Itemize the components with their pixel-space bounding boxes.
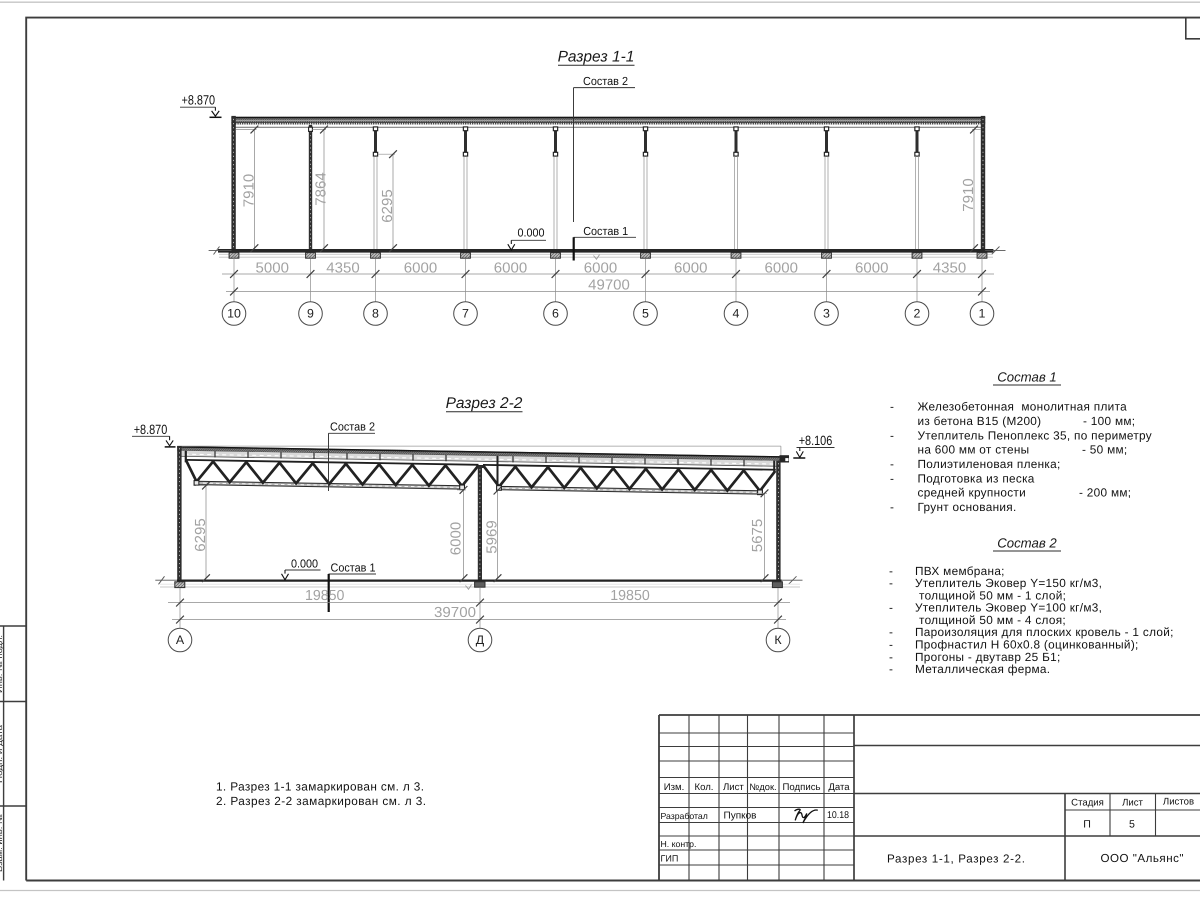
svg-text:Подпись: Подпись: [783, 782, 821, 793]
svg-text:Дата: Дата: [828, 782, 850, 793]
svg-text:6000: 6000: [855, 261, 888, 277]
svg-text:3: 3: [823, 307, 830, 321]
svg-text:7910: 7910: [241, 174, 257, 207]
svg-text:Стадия: Стадия: [1071, 797, 1104, 808]
svg-text:Грунт основания.: Грунт основания.: [918, 500, 1017, 514]
svg-text:Состав 1: Состав 1: [583, 225, 628, 238]
svg-text:39700: 39700: [434, 605, 476, 621]
svg-text:№док.: №док.: [749, 782, 776, 792]
svg-text:Железобетонная монолитная пли: Железобетонная монолитная плита: [918, 400, 1128, 414]
svg-text:Состав 1: Состав 1: [331, 561, 376, 574]
svg-text:8: 8: [372, 307, 379, 321]
svg-text:10: 10: [227, 307, 241, 321]
svg-text:+8.106: +8.106: [799, 433, 833, 448]
svg-text:7: 7: [462, 307, 469, 321]
svg-text:19850: 19850: [610, 588, 650, 604]
svg-text:2: 2: [914, 307, 921, 321]
svg-text:6295: 6295: [193, 518, 209, 551]
svg-text:-: -: [889, 601, 893, 615]
svg-text:Инв. № подл.: Инв. № подл.: [0, 635, 4, 693]
svg-text:ГИП: ГИП: [661, 853, 679, 863]
svg-text:А: А: [176, 633, 185, 647]
svg-text:Листов: Листов: [1163, 797, 1194, 808]
svg-text:9: 9: [307, 307, 314, 321]
svg-text:Н. контр.: Н. контр.: [661, 839, 697, 849]
svg-text:-: -: [890, 400, 894, 414]
svg-text:на 600 мм от стены: на 600 мм от стены: [918, 443, 1030, 457]
svg-text:- 200 мм;: - 200 мм;: [1079, 486, 1131, 500]
svg-text:ООО "Альянс": ООО "Альянс": [1101, 852, 1184, 865]
svg-text:7864: 7864: [314, 172, 330, 205]
svg-text:6295: 6295: [380, 189, 396, 222]
svg-text:Состав 1: Состав 1: [997, 370, 1057, 385]
svg-text:Разработал: Разработал: [661, 811, 708, 821]
svg-text:4350: 4350: [933, 261, 966, 277]
svg-text:Пупков: Пупков: [724, 810, 757, 821]
svg-text:5: 5: [1129, 819, 1135, 831]
svg-text:Разрез 2-2: Разрез 2-2: [446, 395, 523, 412]
svg-text:-: -: [890, 457, 894, 471]
svg-text:6000: 6000: [765, 261, 798, 277]
svg-text:К: К: [774, 633, 782, 647]
svg-text:Состав 2: Состав 2: [330, 421, 375, 434]
svg-text:Полиэтиленовая пленка;: Полиэтиленовая пленка;: [918, 457, 1061, 471]
svg-text:-: -: [889, 662, 893, 676]
svg-text:П: П: [1083, 819, 1091, 831]
svg-text:6000: 6000: [584, 261, 617, 277]
svg-text:5969: 5969: [485, 520, 501, 553]
svg-text:4: 4: [733, 307, 740, 321]
svg-text:Металлическая ферма.: Металлическая ферма.: [915, 662, 1050, 676]
svg-text:-: -: [890, 471, 894, 485]
svg-text:+8.870: +8.870: [182, 93, 216, 108]
svg-text:Лист: Лист: [1122, 797, 1143, 808]
svg-text:Кол.: Кол.: [695, 782, 714, 793]
svg-text:Взам. инв. №: Взам. инв. №: [0, 814, 4, 872]
svg-text:6000: 6000: [448, 522, 464, 555]
svg-text:+8.870: +8.870: [134, 422, 168, 437]
svg-text:Подготовка из песка: Подготовка из песка: [918, 471, 1035, 485]
svg-text:6000: 6000: [494, 261, 527, 277]
svg-text:Лист: Лист: [723, 782, 744, 793]
svg-text:-: -: [890, 500, 894, 514]
svg-text:19850: 19850: [305, 588, 345, 604]
svg-text:Д: Д: [476, 633, 485, 647]
svg-text:Состав 2: Состав 2: [583, 75, 628, 88]
svg-text:1: 1: [979, 307, 986, 321]
svg-text:5: 5: [642, 307, 649, 321]
svg-text:-: -: [890, 428, 894, 442]
svg-text:из бетона В15 (М200): из бетона В15 (М200): [918, 414, 1042, 428]
svg-text:Разрез 1-1: Разрез 1-1: [558, 49, 635, 66]
svg-text:Подп. и дата: Подп. и дата: [0, 724, 4, 783]
svg-text:6000: 6000: [674, 261, 707, 277]
svg-text:6000: 6000: [404, 261, 437, 277]
svg-text:Состав 2: Состав 2: [997, 536, 1057, 551]
svg-text:1. Разрез 1-1 замаркирован см.: 1. Разрез 1-1 замаркирован см. л 3.: [216, 779, 424, 793]
svg-text:- 50 мм;: - 50 мм;: [1082, 443, 1128, 457]
svg-text:Разрез 1-1, Разрез 2-2.: Разрез 1-1, Разрез 2-2.: [887, 853, 1025, 866]
svg-text:2. Разрез 2-2 замаркирован см.: 2. Разрез 2-2 замаркирован см. л 3.: [216, 794, 426, 808]
svg-text:-: -: [889, 576, 893, 590]
svg-text:- 100 мм;: - 100 мм;: [1083, 414, 1135, 428]
svg-text:5675: 5675: [750, 519, 766, 552]
svg-text:Изм.: Изм.: [664, 782, 685, 793]
svg-text:10.18: 10.18: [827, 810, 849, 821]
svg-text:5000: 5000: [256, 261, 289, 277]
svg-text:6: 6: [552, 307, 559, 321]
svg-text:4350: 4350: [326, 261, 359, 277]
svg-text:Утеплитель Пеноплекс 35, по пе: Утеплитель Пеноплекс 35, по периметру: [918, 428, 1152, 442]
svg-text:49700: 49700: [588, 278, 630, 294]
svg-text:0.000: 0.000: [518, 226, 545, 239]
svg-text:0.000: 0.000: [291, 557, 318, 570]
svg-text:7910: 7910: [961, 178, 977, 211]
svg-text:средней крупности: средней крупности: [918, 486, 1027, 500]
